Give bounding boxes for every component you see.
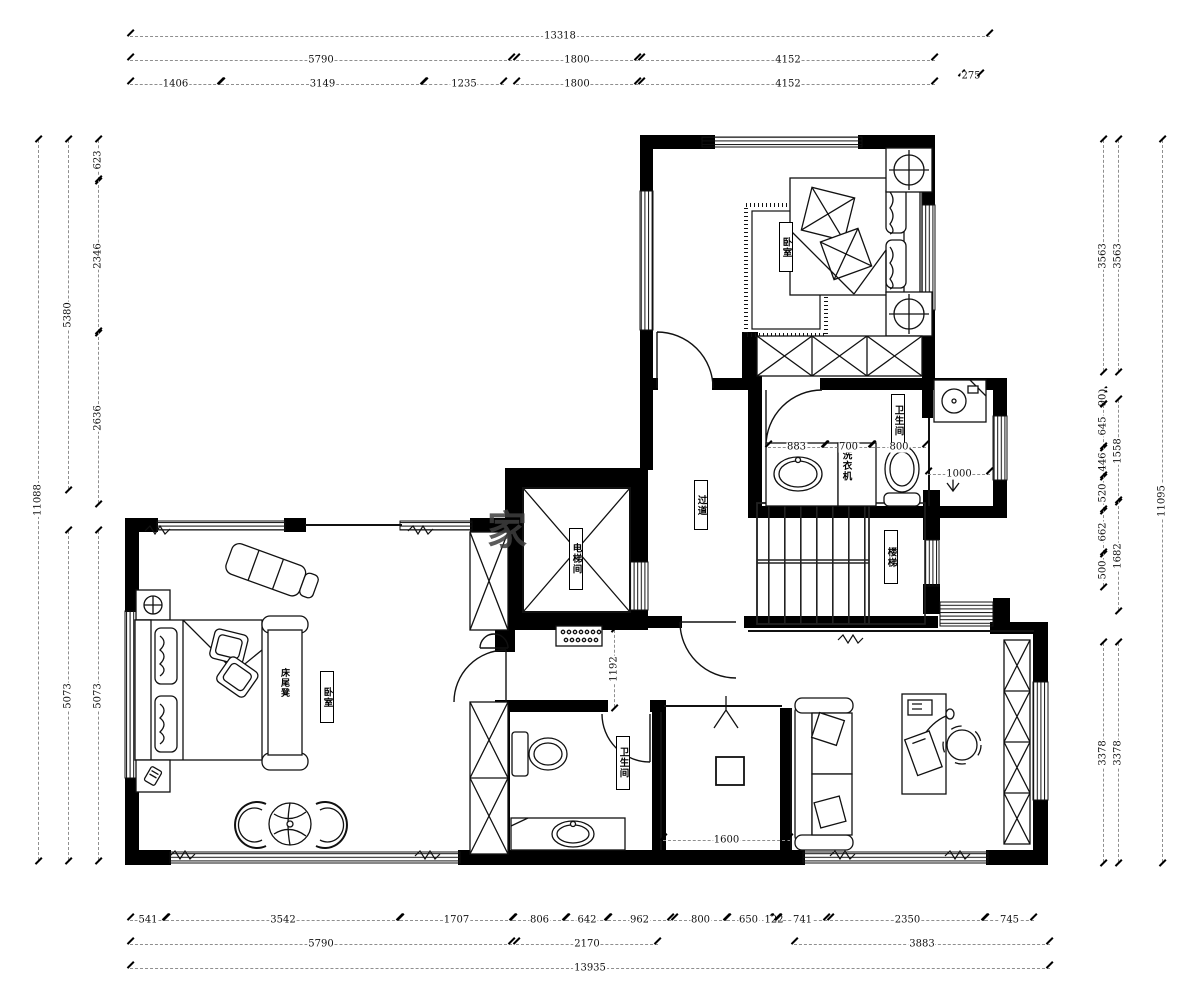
dimension: 741 xyxy=(778,920,827,921)
dimension: 5073 xyxy=(68,531,69,860)
dimension: 1192 xyxy=(614,630,615,707)
dimension: 3563 xyxy=(1103,140,1104,371)
tub-chair-right xyxy=(316,802,347,848)
dimension-value: 1707 xyxy=(443,916,470,926)
dimension: 1600 xyxy=(663,840,790,841)
dimension-value: 800 xyxy=(690,916,711,926)
dimension-value: 3149 xyxy=(309,80,336,90)
label-bed-end-bench: 床尾凳 xyxy=(279,668,288,746)
dimension-value: 500 xyxy=(1099,559,1109,580)
dimension-value: 13935 xyxy=(573,964,607,974)
door-upper-bedroom xyxy=(657,332,713,388)
dimension-value: 541 xyxy=(137,916,158,926)
wardrobe-study xyxy=(1004,640,1030,844)
plan-drawing xyxy=(0,0,1200,985)
dimension: 1406 xyxy=(130,84,221,85)
dimension-value: 1800 xyxy=(563,80,590,90)
dimension: 4152 xyxy=(641,60,935,61)
dimension: 5790 xyxy=(130,944,512,945)
dimension-value: 1235 xyxy=(450,80,477,90)
dimension-value: 5073 xyxy=(93,682,103,709)
dimension-value: 520 xyxy=(1099,482,1109,503)
dimension-value: 1192 xyxy=(609,655,619,682)
dimension-value: 11095 xyxy=(1157,484,1167,518)
dimension-value: 1000 xyxy=(945,470,972,480)
dimension-value: 800 xyxy=(888,443,909,453)
toilet-lower xyxy=(512,732,567,776)
dimension: 11095 xyxy=(1162,140,1163,862)
desk-chair xyxy=(943,726,981,764)
dimension-value: 4152 xyxy=(774,56,801,66)
room-label-bedroom-top: 卧室 xyxy=(779,222,793,272)
dimension-value: 645 xyxy=(1099,415,1109,436)
dimension-value: 3563 xyxy=(1113,242,1123,269)
dimension-value: 741 xyxy=(792,916,813,926)
column-symbol-top xyxy=(886,148,932,192)
dimension: 1800 xyxy=(516,60,638,61)
dimension-value: 700 xyxy=(838,443,859,453)
dimension-value: 446 xyxy=(1099,451,1109,472)
floor-vent xyxy=(556,626,602,646)
dimension: 4152 xyxy=(641,84,935,85)
dimension-value: 2350 xyxy=(894,916,921,926)
dimension: 5073 xyxy=(98,531,99,860)
door-hall xyxy=(680,622,736,678)
watermark: 家 xyxy=(487,498,527,556)
tub-chair-left xyxy=(235,802,266,848)
floor-plan: 卧室 卫生间 洗衣机 过道 电梯间 楼梯 床尾凳 卧室 卫生间 家 133185… xyxy=(0,0,1200,985)
dimension: 745 xyxy=(985,920,1034,921)
dimension-value: 650 xyxy=(738,916,759,926)
room-label-corridor: 过道 xyxy=(694,480,708,530)
round-table xyxy=(269,803,311,845)
dimension: 1682 xyxy=(1118,501,1119,610)
dimension-value: 275 xyxy=(960,72,981,82)
dimension: 662 xyxy=(1103,510,1104,553)
dimension-value: 3883 xyxy=(908,940,935,950)
dimension-value: 5790 xyxy=(307,56,334,66)
dimension-value: 3378 xyxy=(1098,739,1108,766)
dimension: 645 xyxy=(1103,405,1104,447)
dimension: 700 xyxy=(825,447,872,448)
dimension-value: 5790 xyxy=(307,940,334,950)
desk xyxy=(902,694,954,794)
nightstand-top xyxy=(136,590,170,620)
dimension: 1558 xyxy=(1118,400,1119,501)
dimension: 500 xyxy=(1103,553,1104,586)
nightstand-bottom xyxy=(136,760,170,792)
toilet-upper xyxy=(884,446,920,506)
dimension: 2170 xyxy=(516,944,658,945)
room-label-stairs: 楼梯 xyxy=(884,530,898,584)
dimension-value: 3563 xyxy=(1098,242,1108,269)
dimension-value: 1600 xyxy=(713,836,740,846)
dimension: 2350 xyxy=(830,920,985,921)
dimension-value: 2636 xyxy=(93,404,103,431)
dimension: 1800 xyxy=(516,84,638,85)
dimension: 642 xyxy=(566,920,608,921)
dimension: 13318 xyxy=(130,36,990,37)
column-symbol-bottom xyxy=(886,292,932,336)
dimension: 883 xyxy=(768,447,825,448)
dimension: 11088 xyxy=(38,140,39,860)
dimension: 2636 xyxy=(98,332,99,503)
room-label-elevator: 电梯间 xyxy=(569,528,583,590)
room-label-bedroom-left: 卧室 xyxy=(320,671,334,723)
dimension: 3883 xyxy=(794,944,1050,945)
dimension-value: 11088 xyxy=(33,483,43,517)
dimension: 2346 xyxy=(98,180,99,332)
dimension-value: 745 xyxy=(999,916,1020,926)
dimension: 800 xyxy=(674,920,727,921)
dimension: 1000 xyxy=(928,474,990,475)
room-label-bath-lower: 卫生间 xyxy=(616,736,630,790)
dimension-value: 642 xyxy=(576,916,597,926)
dimension: 5790 xyxy=(130,60,512,61)
dimension-value: 1406 xyxy=(162,80,189,90)
dimension: 800 xyxy=(872,447,926,448)
dimension-value: 3378 xyxy=(1113,739,1123,766)
dimension-value: 662 xyxy=(1099,521,1109,542)
dimension: 5380 xyxy=(68,140,69,489)
dimension-value: 2346 xyxy=(93,242,103,269)
dimension: 122 xyxy=(770,920,778,921)
bed-upper xyxy=(790,178,922,295)
dimension-value: 13318 xyxy=(543,32,577,42)
roof-opening xyxy=(716,757,744,785)
dimension-value: 1682 xyxy=(1113,542,1123,569)
dimension-value: 806 xyxy=(529,916,550,926)
corner-basin xyxy=(934,380,986,422)
dimension-value: 5073 xyxy=(63,682,73,709)
stairs xyxy=(757,503,925,624)
dimension: 275 xyxy=(961,76,981,77)
dimension-value: 623 xyxy=(94,149,104,170)
dimension: 3563 xyxy=(1118,140,1119,371)
door-upper-bath xyxy=(766,390,822,446)
dimension-value: 5380 xyxy=(63,301,73,328)
room-label-bath-top: 卫生间 xyxy=(891,394,905,448)
dimension: 3149 xyxy=(221,84,424,85)
dimension: 623 xyxy=(98,140,99,180)
dimension-value: 1558 xyxy=(1113,437,1123,464)
entry-arrow-icon xyxy=(714,696,738,728)
dimension: 962 xyxy=(608,920,671,921)
dimension-value: 962 xyxy=(629,916,650,926)
label-washing-machine: 洗衣机 xyxy=(841,450,851,502)
dimension: 3378 xyxy=(1103,643,1104,862)
dimension: 806 xyxy=(513,920,566,921)
dimension: 520 xyxy=(1103,476,1104,510)
vanity-sink-lower xyxy=(511,818,625,850)
dimension: 1235 xyxy=(424,84,504,85)
dimension: 541 xyxy=(130,920,166,921)
dimension-value: 3542 xyxy=(269,916,296,926)
wardrobe-upper xyxy=(757,336,922,376)
dimension-value: 2170 xyxy=(573,940,600,950)
chaise xyxy=(224,541,321,603)
dimension-value: 1800 xyxy=(563,56,590,66)
wardrobe-left-bottom xyxy=(470,702,508,854)
dimension-value: 4152 xyxy=(774,80,801,90)
door-left-bedroom xyxy=(454,650,506,702)
dimension: 13935 xyxy=(130,968,1050,969)
dimension-value: 883 xyxy=(786,443,807,453)
dimension: 3542 xyxy=(166,920,400,921)
dimension: 3378 xyxy=(1118,643,1119,862)
dimension: 1707 xyxy=(400,920,513,921)
sofa xyxy=(795,698,853,850)
